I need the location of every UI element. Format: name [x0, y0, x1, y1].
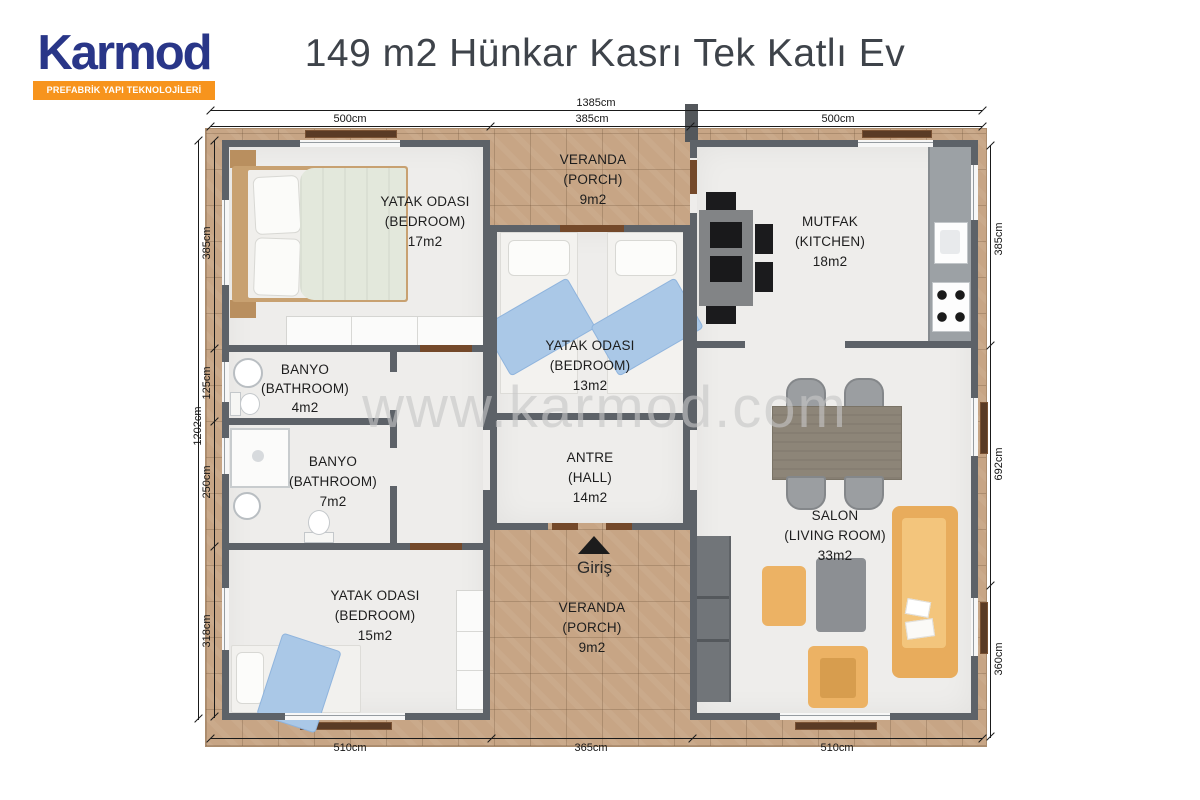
room-area: 14m2: [510, 488, 670, 508]
window: [222, 438, 229, 474]
pillow: [236, 652, 264, 704]
room-name-en: (LIVING ROOM): [745, 526, 925, 546]
karmod-logo: Karmod PREFABRİK YAPI TEKNOLOJİLERİ: [33, 26, 215, 100]
window: [222, 588, 229, 650]
room-label-veranda-top: VERANDA (PORCH) 9m2: [518, 150, 668, 210]
room-area: 7m2: [258, 492, 408, 512]
room-name-tr: ANTRE: [510, 448, 670, 468]
pillow: [905, 618, 935, 640]
tv-unit: [697, 536, 731, 702]
window-sill: [980, 402, 988, 454]
dim-label: 500cm: [300, 113, 400, 125]
dimension-line: [210, 126, 982, 127]
room-name-tr: SALON: [745, 506, 925, 526]
window: [971, 165, 978, 220]
room-area: 18m2: [755, 252, 905, 272]
room-label-salon: SALON (LIVING ROOM) 33m2: [745, 506, 925, 566]
room-name-en: (PORCH): [518, 170, 668, 190]
window: [858, 140, 933, 147]
window: [300, 140, 400, 147]
dim-label: 318cm: [201, 601, 213, 661]
placemat: [710, 222, 742, 248]
dim-label: 500cm: [788, 113, 888, 125]
room-name-en: (BATHROOM): [258, 472, 408, 492]
room-area: 9m2: [518, 190, 668, 210]
room-label-bedroom-15: YATAK ODASI (BEDROOM) 15m2: [295, 586, 455, 646]
window: [285, 713, 405, 720]
room-area: 17m2: [350, 232, 500, 252]
room-label-bathroom-7: BANYO (BATHROOM) 7m2: [258, 452, 408, 512]
pillow: [253, 175, 302, 235]
room-name-tr: MUTFAK: [755, 212, 905, 232]
dim-label: 365cm: [541, 742, 641, 754]
door: [690, 160, 697, 194]
logo-tagline: PREFABRİK YAPI TEKNOLOJİLERİ: [33, 81, 215, 100]
dimension-line: [214, 140, 215, 718]
dimension-line: [990, 145, 991, 738]
page-title: 149 m2 Hünkar Kasrı Tek Katlı Ev: [230, 32, 980, 76]
dim-label: 385cm: [201, 213, 213, 273]
room-name-en: (HALL): [510, 468, 670, 488]
room-name-tr: BANYO: [258, 452, 408, 472]
room-label-kitchen: MUTFAK (KITCHEN) 18m2: [755, 212, 905, 272]
floor-plan-page: Karmod PREFABRİK YAPI TEKNOLOJİLERİ 149 …: [0, 0, 1200, 800]
window: [222, 200, 229, 285]
window-sill: [862, 130, 932, 138]
toilet: [308, 510, 330, 535]
room-name-en: (BEDROOM): [295, 606, 455, 626]
room-name-en: (KITCHEN): [755, 232, 905, 252]
entrance-arrow-icon: [578, 536, 610, 554]
dining-chair: [786, 476, 826, 510]
room-name-en: (PORCH): [517, 618, 667, 638]
room-name-tr: YATAK ODASI: [350, 192, 500, 212]
room-name-en: (BEDROOM): [350, 212, 500, 232]
room-label-veranda-bottom: VERANDA (PORCH) 9m2: [517, 598, 667, 658]
cooktop: [932, 282, 970, 332]
ottoman: [762, 566, 806, 626]
wall: [845, 341, 978, 348]
room-name-tr: YATAK ODASI: [515, 336, 665, 356]
window: [780, 713, 890, 720]
dimension-line: [210, 110, 982, 111]
dining-chair: [844, 476, 884, 510]
logo-wordmark: Karmod: [33, 26, 215, 80]
room-area: 33m2: [745, 546, 925, 566]
door: [560, 225, 624, 232]
nightstand: [230, 300, 256, 318]
room-label-hall: ANTRE (HALL) 14m2: [510, 448, 670, 508]
door: [410, 543, 462, 550]
wall: [632, 523, 690, 530]
pillow: [253, 237, 301, 297]
door: [420, 345, 472, 352]
room-name-tr: VERANDA: [517, 598, 667, 618]
dim-label: 360cm: [993, 629, 1005, 689]
pillow: [508, 240, 570, 276]
room-label-bedroom-17: YATAK ODASI (BEDROOM) 17m2: [350, 192, 500, 252]
kitchen-chair: [706, 192, 736, 210]
door-threshold: [606, 523, 632, 530]
window-sill: [795, 722, 877, 730]
placemat: [710, 256, 742, 282]
room-area: 9m2: [517, 638, 667, 658]
dim-label: 692cm: [993, 434, 1005, 494]
armchair-cushion: [820, 658, 856, 698]
dim-label: 125cm: [201, 353, 213, 413]
door-threshold: [552, 523, 578, 530]
dim-label: 510cm: [300, 742, 400, 754]
window: [971, 598, 978, 656]
watermark: www.karmod.com: [235, 368, 975, 448]
wardrobe: [456, 590, 485, 710]
dimension-line: [210, 738, 982, 739]
room-area: 15m2: [295, 626, 455, 646]
wardrobe: [286, 316, 485, 346]
wall: [690, 140, 978, 147]
pillow: [615, 240, 677, 276]
entrance-label: Giriş: [552, 558, 637, 578]
wall: [690, 341, 745, 348]
washbasin: [233, 492, 261, 520]
dim-label: 250cm: [201, 452, 213, 512]
wall: [490, 523, 548, 530]
ottoman: [816, 558, 866, 632]
kitchen-chair: [706, 306, 736, 324]
dim-label: 510cm: [787, 742, 887, 754]
room-name-tr: VERANDA: [518, 150, 668, 170]
window-sill: [980, 602, 988, 654]
dim-label-top-total: 1385cm: [546, 97, 646, 109]
room-name-tr: YATAK ODASI: [295, 586, 455, 606]
dim-label: 385cm: [542, 113, 642, 125]
sink-basin: [940, 230, 960, 254]
dim-label: 385cm: [993, 209, 1005, 269]
window-sill: [305, 130, 397, 138]
